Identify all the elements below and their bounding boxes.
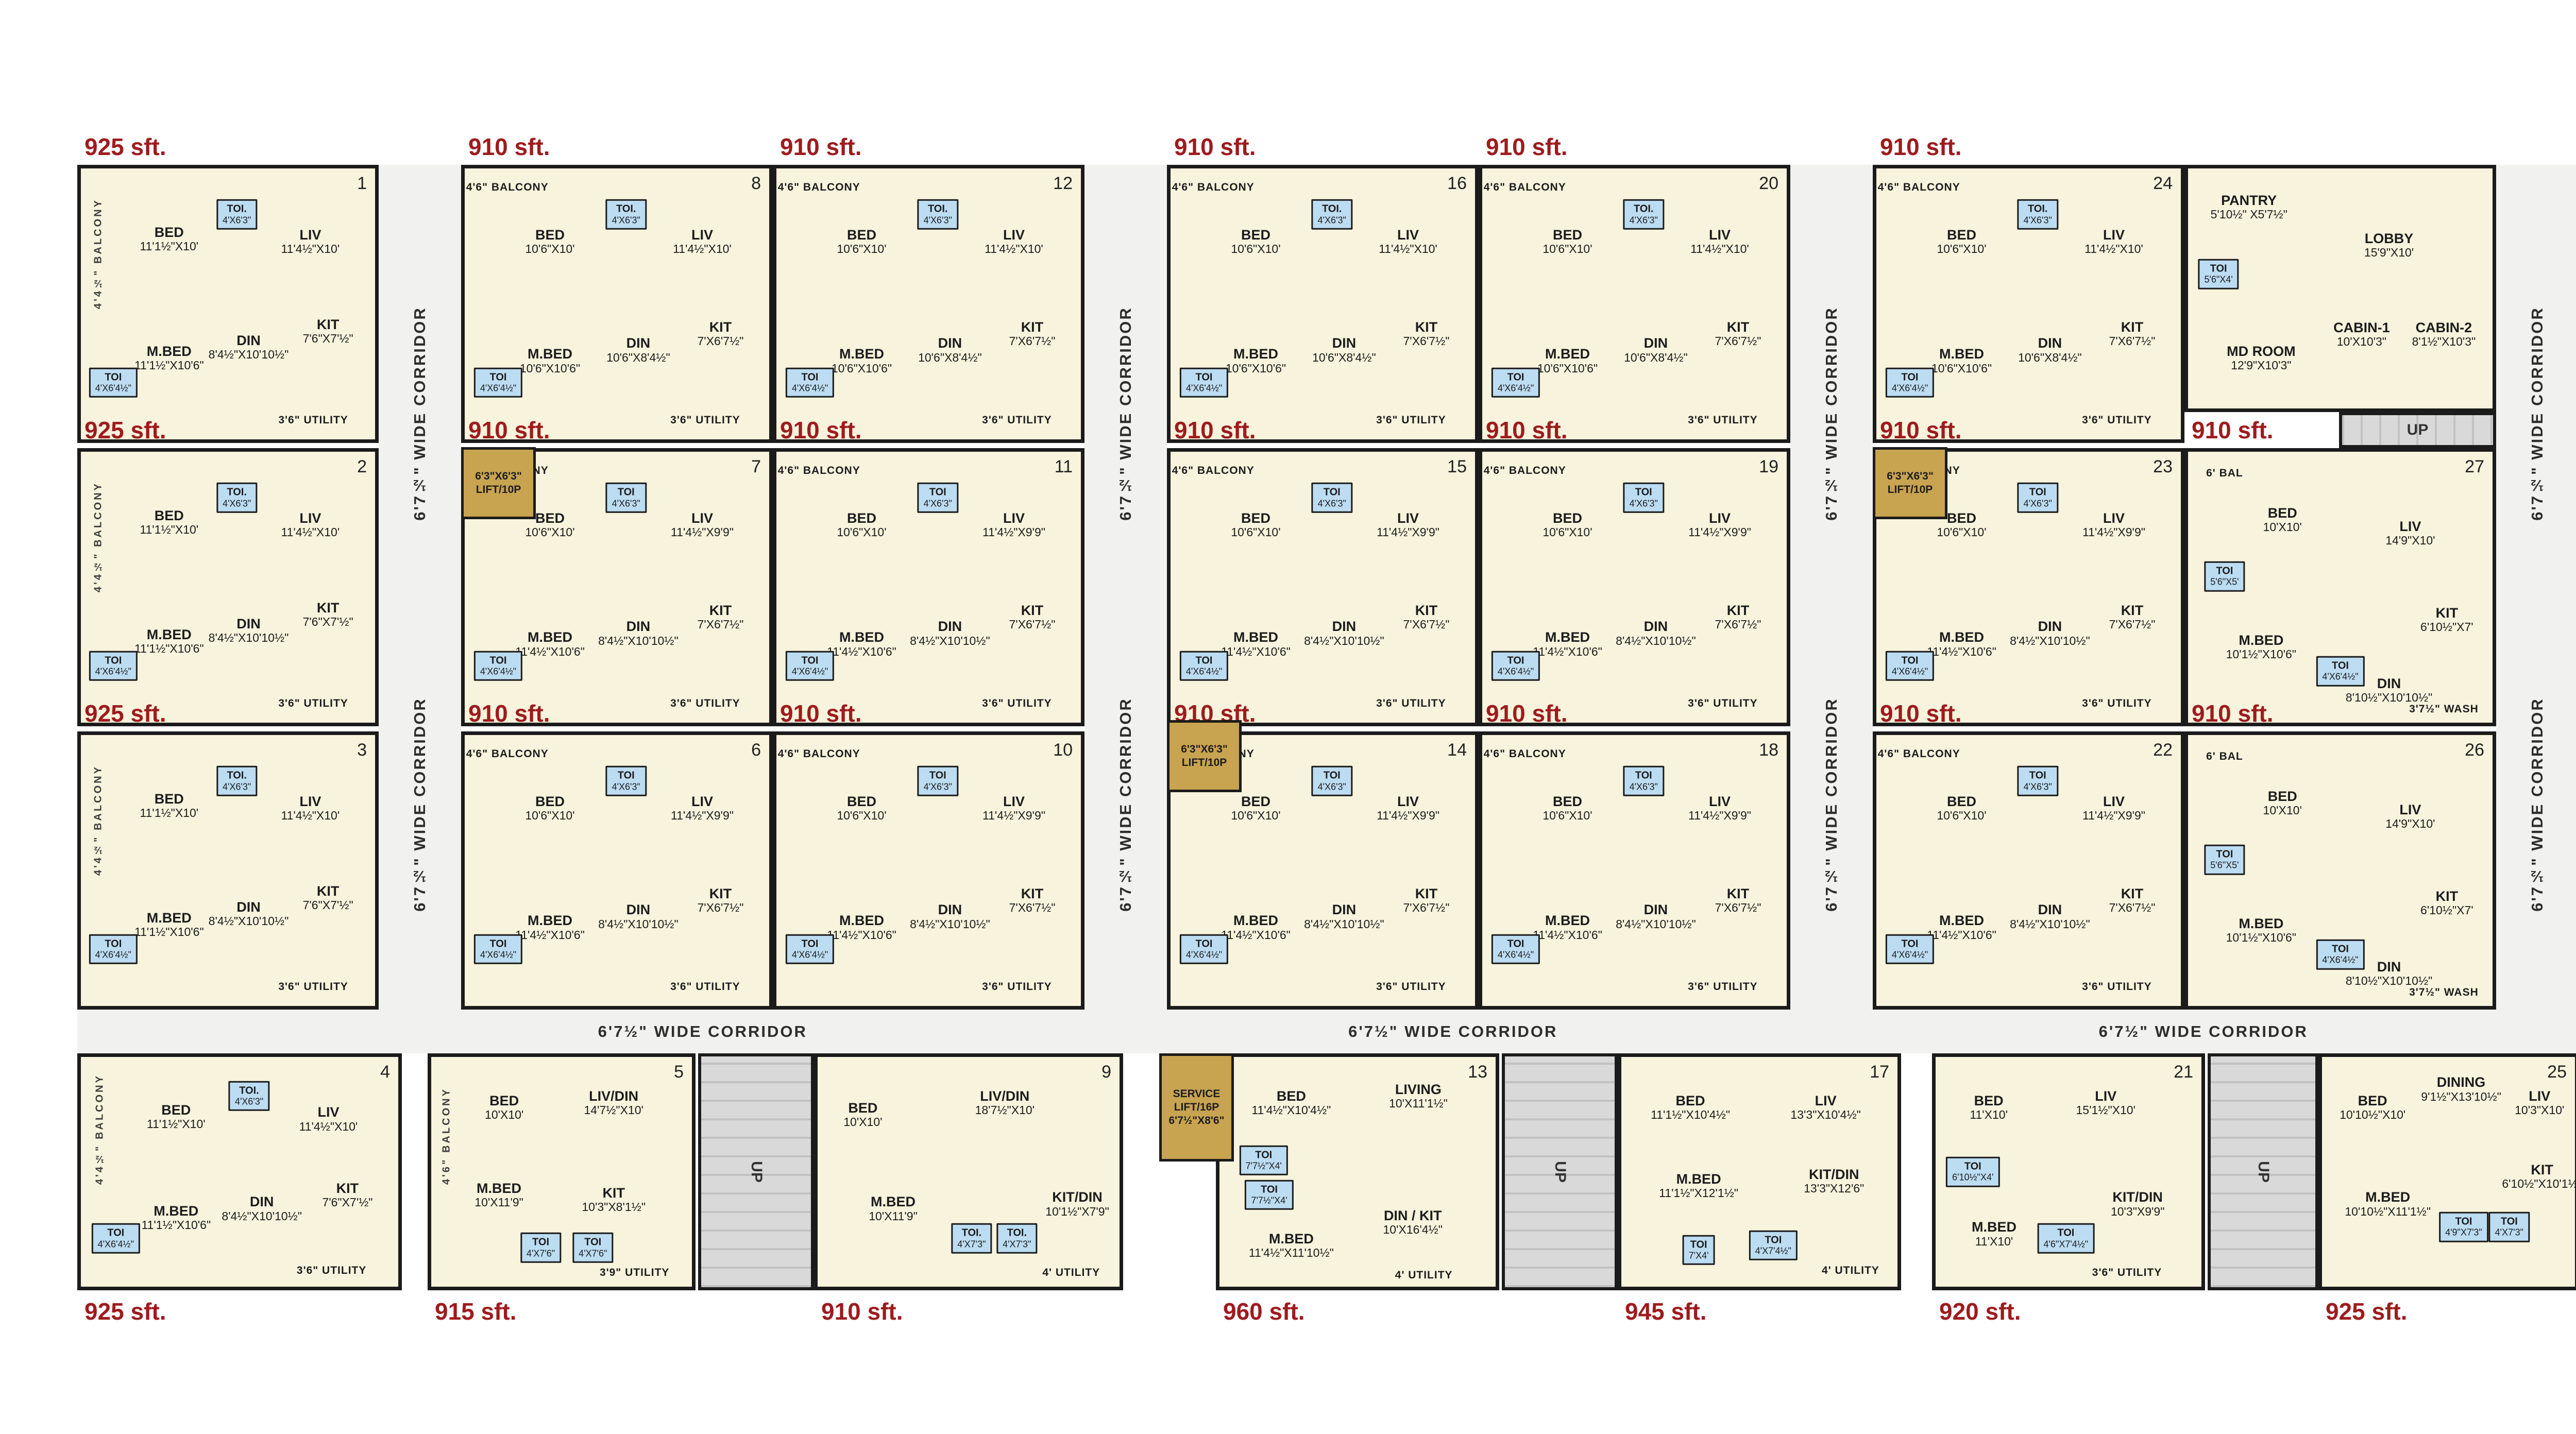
room-label: M.BED11'1½"X12'1½" (1659, 1171, 1738, 1200)
unit-card: 6' BALBED10'X10'TOI5'6"X5'LIV14'9"X10'M.… (2184, 731, 2496, 1010)
room-label: DIN8'4½"X10'10½" (1616, 902, 1696, 931)
stairs-up-label: UP (2407, 421, 2429, 439)
room-label: BED10'6"X10' (525, 227, 574, 256)
lift-label: LIFT/10P (476, 483, 521, 497)
lift-label: LIFT/10P (1888, 483, 1933, 497)
room-label: LIV11'4½"X10' (1690, 227, 1749, 256)
room-label: 4' UTILITY (1395, 1269, 1453, 1282)
room-label: 4' UTILITY (1822, 1265, 1879, 1277)
room-label: 3'6" UTILITY (1688, 981, 1757, 993)
room-label: M.BED11'4½"X10'6" (1533, 629, 1602, 658)
room-label: DIN10'6"X8'4½" (1624, 335, 1688, 364)
unit-number: 6 (751, 740, 761, 760)
unit-sqft-label: 910 sft. (1174, 416, 1256, 444)
room-label: 3'9" UTILITY (600, 1267, 669, 1279)
unit-card: 4'6" BALCONYBED10'6"X10'TOI.4'X6'3"LIV11… (461, 165, 773, 443)
room-label: 3'6" UTILITY (1376, 981, 1446, 993)
stairs-up-label: UP (748, 1161, 765, 1183)
room-label: 4'6" BALCONY (1878, 748, 1960, 760)
room-label: M.BED11'4½"X10'6" (1533, 913, 1602, 942)
room-label: M.BED10'X11'9" (869, 1194, 918, 1223)
room-label: KIT7'X6'7½" (1009, 319, 1056, 348)
corridor-label: 6'7½" WIDE CORRIDOR (1116, 306, 1135, 521)
room-label: DIN10'6"X8'4½" (1312, 335, 1376, 364)
unit-card: 4'6" BALCONYBED10'6"X10'TOI.4'X6'3"LIV11… (1873, 165, 2184, 443)
room-label: LIV11'4½"X9'9" (1688, 794, 1751, 823)
unit-number: 10 (1053, 740, 1073, 760)
room-label: M.BED11'4½"X10'6" (827, 629, 896, 658)
unit-card: 4'6" BALCONYBED10'6"X10'TOI4'X6'3"LIV11'… (773, 448, 1084, 726)
room-label: BED11'1½"X10' (140, 508, 198, 537)
room-label: LIV/DIN18'7½"X10' (975, 1088, 1035, 1117)
toilet-room-label: TOI5'6"X4' (2198, 259, 2239, 289)
room-label: KIT7'X6'7½" (1009, 603, 1056, 631)
room-label: 3'7½" WASH (2409, 703, 2479, 715)
room-label: DIN8'10½"X10'10½" (2346, 676, 2432, 705)
toilet-room-label: TOI.4'X6'3" (606, 199, 647, 230)
unit-number: 26 (2465, 740, 2484, 760)
unit-sqft-label: 910 sft. (1880, 133, 1962, 161)
room-label: KIT7'X6'7½" (2109, 319, 2156, 348)
room-label: LIV11'4½"X9'9" (982, 794, 1045, 823)
unit-sqft-label: 910 sft. (780, 416, 862, 444)
room-label: LIV11'4½"X10' (281, 227, 340, 256)
unit-sqft-label: 915 sft. (435, 1298, 517, 1325)
room-label: LIV15'1½"X10' (2076, 1088, 2136, 1117)
toilet-room-label: TOI5'6"X5' (2204, 845, 2245, 875)
room-label: 4'6" BALCONY (466, 748, 549, 760)
toilet-room-label: TOI4'X6'4½" (474, 934, 522, 964)
room-label: M.BED11'X10' (1972, 1219, 2016, 1248)
unit-card: 4'6" BALCONYBED10'6"X10'TOI4'X6'3"LIV11'… (461, 731, 773, 1010)
toilet-room-label: TOI4'X6'4½" (1180, 367, 1228, 398)
corridor: 6'7½" WIDE CORRIDOR6'7½" WIDE CORRIDOR (379, 165, 461, 1053)
unit-number: 3 (357, 740, 367, 760)
unit-number: 9 (1101, 1062, 1111, 1082)
room-label: M.BED11'1½"X10'6" (134, 627, 204, 656)
lift-label: 6'3"X6'3" (1181, 743, 1228, 756)
room-label: M.BED11'4½"X10'6" (827, 913, 896, 942)
toilet-room-label: TOI4'X6'3" (918, 766, 958, 796)
room-label: 4'6" BALCONY (1484, 181, 1566, 194)
room-label: 3'6" UTILITY (1688, 414, 1757, 426)
toilet-room-label: TOI4'X7'6" (572, 1233, 613, 1263)
staircase: UP (2208, 1053, 2318, 1290)
staircase: UP (1502, 1053, 1618, 1290)
corridor: 6'7½" WIDE CORRIDOR6'7½" WIDE CORRIDOR6'… (77, 1010, 2576, 1053)
room-label: LIV11'4½"X10' (281, 510, 340, 539)
room-label: KIT7'6"X7'½" (303, 317, 353, 346)
room-label: BED10'6"X10' (525, 794, 574, 823)
room-label: M.BED11'4½"X10'6" (515, 629, 585, 658)
room-label: LIV11'4½"X10' (673, 227, 732, 256)
toilet-room-label: TOI7'7½"X4' (1245, 1180, 1293, 1210)
unit-card: BED11'1½"X10'4½"LIV13'3"X10'4½"M.BED11'1… (1618, 1053, 1901, 1290)
room-label: LIV11'4½"X9'9" (671, 510, 734, 539)
lift-label: 6'7½"X8'6" (1168, 1114, 1224, 1128)
balcony-label: 4'4½" BALCONY (93, 198, 105, 309)
corridor-label: 6'7½" WIDE CORRIDOR (2528, 306, 2547, 521)
corridor: 6'7½" WIDE CORRIDOR6'7½" WIDE CORRIDOR (2496, 165, 2576, 1053)
toilet-room-label: TOI4'X6'4½" (1180, 651, 1228, 681)
lift-label: SERVICE (1173, 1087, 1221, 1101)
unit-number: 16 (1447, 174, 1467, 194)
room-label: DIN8'4½"X10'10½" (598, 619, 679, 647)
toilet-room-label: TOI4'9"X7'3" (2439, 1212, 2488, 1242)
lift: 6'3"X6'3"LIFT/10P (1873, 447, 1947, 519)
unit-number: 4 (380, 1062, 390, 1082)
corridor-label: 6'7½" WIDE CORRIDOR (411, 697, 429, 912)
unit-card: 4'6" BALCONYBED10'6"X10'TOI4'X6'3"LIV11'… (1479, 448, 1790, 726)
room-label: LIV10'3"X10' (2515, 1088, 2564, 1117)
room-label: 3'6" UTILITY (278, 697, 348, 710)
toilet-room-label: TOI4'X6'4½" (1492, 367, 1540, 398)
room-label: KIT7'X6'7½" (1403, 319, 1450, 348)
unit-card: BED10'X10'LIV/DIN18'7½"X10'M.BED10'X11'9… (814, 1053, 1123, 1290)
unit-sqft-label: 925 sft. (2326, 1298, 2408, 1325)
room-label: M.BED11'4½"X10'6" (1927, 629, 1996, 658)
unit-card: 4'6" BALCONYBED10'6"X10'TOI4'X6'3"LIV11'… (1167, 448, 1479, 726)
room-label: KIT7'X6'7½" (1715, 886, 1761, 915)
room-label: 3'6" UTILITY (278, 981, 348, 993)
corridor-label: 6'7½" WIDE CORRIDOR (2099, 1022, 2308, 1041)
unit-card: 4'4½" BALCONYBED11'1½"X10'TOI.4'X6'3"LIV… (77, 1053, 402, 1290)
unit-sqft-label: 910 sft. (1880, 699, 1962, 727)
room-label: LIV11'4½"X9'9" (1688, 510, 1751, 539)
room-label: BED10'6"X10' (837, 794, 886, 823)
toilet-room-label: TOI.4'X6'3" (1312, 199, 1352, 230)
toilet-room-label: TOI4'X6'4½" (786, 934, 834, 964)
room-label: DIN8'4½"X10'10½" (209, 616, 289, 645)
room-label: BED10'6"X10' (1231, 227, 1280, 256)
lift-label: LIFT/10P (1182, 756, 1227, 770)
toilet-room-label: TOI4'X6'4½" (92, 1223, 140, 1254)
lift: 6'3"X6'3"LIFT/10P (1167, 720, 1242, 792)
unit-card: 4'6" BALCONYBED10'6"X10'TOI4'X6'3"LIV11'… (1873, 731, 2184, 1010)
room-label: KIT7'6"X7'½" (322, 1181, 372, 1209)
room-label: DIN8'4½"X10'10½" (222, 1194, 302, 1223)
lift-label: 6'3"X6'3" (1887, 470, 1934, 483)
office-suite: PANTRY5'10½" X5'7½"TOI5'6"X4'LOBBY15'9"X… (2184, 165, 2496, 412)
unit-sqft-label: 960 sft. (1223, 1298, 1305, 1325)
unit-card: 4'6" BALCONYBED10'6"X10'TOI.4'X6'3"LIV11… (1167, 165, 1479, 443)
toilet-room-label: TOI4'X6'4½" (1180, 934, 1228, 964)
room-label: KIT7'X6'7½" (698, 603, 744, 631)
room-label: 4' UTILITY (1042, 1267, 1100, 1279)
room-label: LIV11'4½"X10' (281, 794, 340, 823)
room-label: M.BED10'6"X10'6" (1226, 346, 1286, 375)
unit-card: BED11'X10'LIV15'1½"X10'TOI6'10½"X4'M.BED… (1932, 1053, 2205, 1290)
room-label: KIT7'X6'7½" (1715, 319, 1761, 348)
room-label: 4'4½" BALCONY (94, 1074, 106, 1187)
room-label: DIN8'4½"X10'10½" (1304, 902, 1384, 931)
unit-sqft-label: 910 sft. (1486, 699, 1568, 727)
toilet-room-label: TOI4'X7'6" (520, 1233, 561, 1263)
balcony-label: 4'4½" BALCONY (93, 765, 105, 876)
room-label: LIV11'4½"X9'9" (1377, 510, 1439, 539)
room-label: KIT7'X6'7½" (1403, 886, 1450, 915)
unit-sqft-label: 925 sft. (84, 133, 166, 161)
room-label: BED10'X10' (485, 1093, 523, 1122)
room-label: DINING9'1½"X13'10½" (2421, 1074, 2501, 1103)
corridor-label: 6'7½" WIDE CORRIDOR (598, 1022, 807, 1041)
room-label: 4'6" BALCONY (1484, 465, 1566, 477)
room-label: LIV11'4½"X10' (1379, 227, 1437, 256)
unit-card: BED10'10½"X10'DINING9'1½"X13'10½"LIV10'3… (2318, 1053, 2576, 1290)
unit-card: 4'4½" BALCONYBED11'1½"X10'TOI.4'X6'3"LIV… (77, 165, 379, 443)
room-label: M.BED11'1½"X10'6" (141, 1203, 211, 1232)
room-label: 4'6" BALCONY (1172, 465, 1255, 477)
corridor-label: 6'7½" WIDE CORRIDOR (411, 306, 429, 521)
unit-sqft-label: 910 sft. (2192, 416, 2274, 444)
room-label: M.BED10'1½"X10'6" (2226, 916, 2296, 945)
room-label: BED10'6"X10' (1937, 227, 1986, 256)
floor-plan-canvas: GROUND FLOOR PLAN N E S W 6'7½" WIDE COR… (0, 0, 2576, 1434)
room-label: DIN8'4½"X10'10½" (1616, 619, 1696, 647)
toilet-room-label: TOI4'X6'3" (606, 483, 647, 513)
room-label: 4'6" BALCONY (778, 748, 860, 760)
room-label: 4'6" BALCONY (1172, 181, 1255, 194)
room-label: 3'6" UTILITY (1376, 414, 1446, 426)
room-label: PANTRY5'10½" X5'7½" (2211, 193, 2287, 221)
unit-sqft-label: 910 sft. (468, 133, 550, 161)
room-label: KIT6'10½"X7' (2420, 889, 2473, 917)
unit-card: 4'6" BALCONYBED10'6"X10'TOI4'X6'3"LIV11'… (773, 731, 1084, 1010)
room-label: LIVING10'X11'1½" (1389, 1082, 1448, 1111)
unit-sqft-label: 910 sft. (780, 133, 862, 161)
room-label: DIN10'6"X8'4½" (2018, 335, 2082, 364)
corridor-label: 6'7½" WIDE CORRIDOR (1822, 697, 1841, 912)
room-label: M.BED11'4½"X11'10½" (1249, 1231, 1334, 1260)
room-label: LIV11'4½"X9'9" (2082, 510, 2145, 539)
room-label: KIT10'3"X8'1½" (582, 1185, 646, 1214)
toilet-room-label: TOI4'6"X7'4½" (2037, 1223, 2094, 1254)
toilet-room-label: TOI4'X6'4½" (1886, 367, 1934, 398)
unit-number: 14 (1447, 740, 1467, 760)
unit-sqft-label: 910 sft. (1486, 133, 1568, 161)
room-label: KIT/DIN10'1½"X7'9" (1045, 1189, 1109, 1218)
room-label: M.BED10'6"X10'6" (1537, 346, 1598, 375)
toilet-room-label: TOI6'10½"X4' (1946, 1157, 1999, 1187)
room-label: LIV11'4½"X9'9" (2082, 794, 2145, 823)
room-label: LIV11'4½"X10' (985, 227, 1043, 256)
unit-card: BED11'4½"X10'4½"LIVING10'X11'1½"TOI7'7½"… (1216, 1053, 1499, 1290)
toilet-room-label: TOI.4'X6'3" (918, 199, 958, 230)
room-label: 6' BAL (2206, 750, 2243, 763)
toilet-room-label: TOI4'X6'3" (918, 483, 958, 513)
unit-sqft-label: 925 sft. (84, 1298, 166, 1325)
corridor-label: 6'7½" WIDE CORRIDOR (1822, 306, 1841, 521)
room-label: 3'6" UTILITY (278, 414, 348, 426)
room-label: 6' BAL (2206, 467, 2243, 480)
unit-sqft-label: 910 sft. (1174, 133, 1256, 161)
room-label: M.BED11'4½"X10'6" (1221, 629, 1291, 658)
toilet-room-label: TOI4'X6'3" (606, 766, 647, 796)
room-label: 3'6" UTILITY (297, 1265, 366, 1277)
room-label: M.BED10'1½"X10'6" (2226, 633, 2296, 661)
room-label: KIT7'6"X7'½" (303, 600, 353, 629)
unit-card: 4'6" BALCONYBED10'6"X10'TOI.4'X6'3"LIV11… (773, 165, 1084, 443)
room-label: BED11'4½"X10'4½" (1251, 1088, 1331, 1117)
room-label: LIV11'4½"X9'9" (671, 794, 734, 823)
room-label: CABIN-28'1½"X10'3" (2412, 320, 2476, 349)
room-label: KIT7'X6'7½" (2109, 886, 2156, 915)
room-label: KIT6'10½"X10'1½" (2502, 1162, 2576, 1191)
toilet-room-label: TOI4'X6'4½" (474, 367, 522, 398)
room-label: DIN8'4½"X10'10½" (2010, 902, 2090, 931)
room-label: M.BED11'4½"X10'6" (1927, 913, 1996, 942)
toilet-room-label: TOI4'X6'3" (1312, 483, 1352, 513)
room-label: LIV13'3"X10'4½" (1790, 1093, 1860, 1122)
room-label: M.BED10'X11'9" (474, 1181, 523, 1209)
room-label: M.BED10'6"X10'6" (1931, 346, 1992, 375)
room-label: 4'4½" BALCONY (93, 482, 105, 595)
room-label: LIV14'9"X10' (2385, 519, 2435, 548)
unit-sqft-label: 920 sft. (1939, 1298, 2021, 1325)
room-label: 3'6" UTILITY (670, 414, 740, 426)
toilet-room-label: TOI4'X6'3" (1623, 483, 1664, 513)
lift: 6'3"X6'3"LIFT/10P (461, 447, 536, 519)
unit-sqft-label: 910 sft. (468, 416, 550, 444)
unit-number: 24 (2153, 174, 2173, 194)
toilet-room-label: TOI.4'X6'3" (2018, 199, 2058, 230)
room-label: DIN8'4½"X10'10½" (910, 619, 990, 647)
room-label: M.BED10'6"X10'6" (520, 346, 580, 375)
toilet-room-label: TOI4'X6'3" (2018, 483, 2058, 513)
room-label: BED10'6"X10' (1543, 227, 1592, 256)
room-label: LIV11'4½"X10' (2084, 227, 2143, 256)
room-label: 4'6" BALCONY (441, 1087, 453, 1187)
room-label: M.BED10'10½"X11'1½" (2345, 1189, 2431, 1218)
room-label: 3'6" UTILITY (670, 981, 740, 993)
room-label: BED10'6"X10' (837, 227, 886, 256)
toilet-room-label: TOI5'6"X5' (2204, 561, 2245, 592)
toilet-room-label: TOI.4'X6'3" (216, 483, 257, 513)
lift: SERVICELIFT/16P6'7½"X8'6" (1159, 1053, 1234, 1162)
room-label: 3'6" UTILITY (2082, 981, 2151, 993)
toilet-room-label: TOI.4'X7'3" (951, 1223, 992, 1254)
room-label: 4'6" BALCONY (778, 181, 860, 194)
unit-sqft-label: 910 sft. (468, 699, 550, 727)
stairs-up-label: UP (1551, 1161, 1569, 1183)
room-label: KIT7'X6'7½" (1715, 603, 1761, 631)
room-label: DIN8'4½"X10'10½" (910, 902, 990, 931)
room-label: 4'6" BALCONY (466, 181, 549, 194)
unit-number: 7 (751, 457, 761, 477)
toilet-room-label: TOI4'X6'4½" (89, 934, 138, 964)
unit-sqft-label: 925 sft. (84, 416, 166, 444)
room-label: LIV11'4½"X9'9" (982, 510, 1045, 539)
room-label: DIN8'4½"X10'10½" (1304, 619, 1384, 647)
room-label: BED10'X10' (2263, 505, 2302, 534)
unit-sqft-label: 910 sft. (780, 699, 862, 727)
unit-number: 18 (1759, 740, 1778, 760)
toilet-room-label: TOI4'X6'4½" (786, 651, 834, 681)
room-label: DIN8'4½"X10'10½" (2010, 619, 2090, 647)
room-label: BED10'6"X10' (1543, 510, 1592, 539)
toilet-room-label: TOI4'X6'4½" (474, 651, 522, 681)
toilet-room-label: TOI7'7½"X4' (1240, 1145, 1288, 1175)
room-label: LIV11'4½"X10' (299, 1104, 358, 1133)
room-label: BED10'6"X10' (1231, 510, 1280, 539)
unit-number: 13 (1468, 1062, 1487, 1082)
toilet-room-label: TOI4'X6'3" (1623, 766, 1664, 796)
room-label: BED10'6"X10' (1937, 794, 1986, 823)
room-label: 4'6" BALCONY (1878, 181, 1960, 194)
unit-number: 11 (1055, 457, 1073, 477)
toilet-room-label: TOI4'X7'3" (2489, 1212, 2530, 1242)
toilet-room-label: TOI4'X6'4½" (89, 367, 138, 398)
toilet-room-label: TOI4'X6'4½" (89, 651, 138, 681)
unit-number: 8 (751, 174, 761, 194)
room-label: M.BED11'4½"X10'6" (1221, 913, 1291, 942)
room-label: DIN / KIT10'X16'4½" (1383, 1208, 1442, 1237)
room-label: 4'4½" BALCONY (93, 198, 105, 312)
unit-card: 4'4½" BALCONYBED11'1½"X10'TOI.4'X6'3"LIV… (77, 448, 379, 726)
corridor-label: 6'7½" WIDE CORRIDOR (1348, 1022, 1557, 1041)
room-label: KIT/DIN13'3"X12'6" (1804, 1167, 1864, 1196)
stairs-up-label: UP (2255, 1161, 2272, 1183)
unit-number: 19 (1759, 457, 1778, 477)
corridor-label: 6'7½" WIDE CORRIDOR (1116, 697, 1135, 912)
toilet-room-label: TOI4'X6'4½" (1886, 651, 1934, 681)
lift-label: 6'3"X6'3" (475, 470, 522, 483)
room-label: MD ROOM12'9"X10'3" (2227, 344, 2295, 372)
room-label: BED10'10½"X10' (2340, 1093, 2405, 1122)
toilet-room-label: TOI4'X6'4½" (1492, 651, 1540, 681)
toilet-room-label: TOI7'X4' (1683, 1235, 1715, 1265)
room-label: CABIN-110'X10'3" (2333, 320, 2390, 349)
unit-number: 22 (2153, 740, 2173, 760)
room-label: 4'6" BALCONY (1484, 748, 1566, 760)
room-label: BED11'1½"X10' (140, 225, 198, 253)
room-label: KIT7'X6'7½" (1009, 886, 1056, 915)
room-label: DIN10'6"X8'4½" (918, 335, 982, 364)
room-label: DIN10'6"X8'4½" (606, 335, 670, 364)
room-label: BED10'6"X10' (837, 510, 886, 539)
room-label: LIV14'9"X10' (2385, 802, 2435, 831)
room-label: BED10'X10' (843, 1100, 882, 1129)
room-label: KIT7'X6'7½" (2109, 603, 2156, 631)
unit-number: 23 (2153, 457, 2173, 477)
unit-number: 15 (1447, 457, 1467, 477)
unit-number: 17 (1870, 1062, 1889, 1082)
corridor: 6'7½" WIDE CORRIDOR6'7½" WIDE CORRIDOR (1790, 165, 1873, 1053)
room-label: 4'4½" BALCONY (93, 765, 105, 878)
room-label: M.BED11'4½"X10'6" (515, 913, 585, 942)
room-label: 4'6" BALCONY (778, 465, 860, 477)
unit-number: 2 (357, 457, 367, 477)
toilet-room-label: TOI.4'X6'3" (1623, 199, 1664, 230)
room-label: 3'6" UTILITY (2082, 697, 2151, 710)
unit-number: 27 (2465, 457, 2484, 477)
unit-number: 25 (2547, 1062, 2567, 1082)
unit-number: 21 (2174, 1062, 2193, 1082)
toilet-room-label: TOI4'X6'3" (2018, 766, 2058, 796)
unit-sqft-label: 910 sft. (2192, 699, 2274, 727)
toilet-room-label: TOI.4'X6'3" (216, 199, 257, 230)
unit-sqft-label: 910 sft. (1880, 416, 1962, 444)
staircase: UP (698, 1053, 814, 1290)
room-label: BED10'6"X10' (1231, 794, 1280, 823)
room-label: BED10'6"X10' (1543, 794, 1592, 823)
corridor-label: 6'7½" WIDE CORRIDOR (2528, 697, 2547, 912)
unit-card: 4'6" BALCONYBED10'6"X10'TOI.4'X6'3"LIV11… (1479, 165, 1790, 443)
room-label: 3'6" UTILITY (982, 981, 1052, 993)
room-label: KIT6'10½"X7' (2420, 605, 2473, 634)
room-label: LIV11'4½"X9'9" (1377, 794, 1439, 823)
toilet-room-label: TOI4'X6'3" (1312, 766, 1352, 796)
